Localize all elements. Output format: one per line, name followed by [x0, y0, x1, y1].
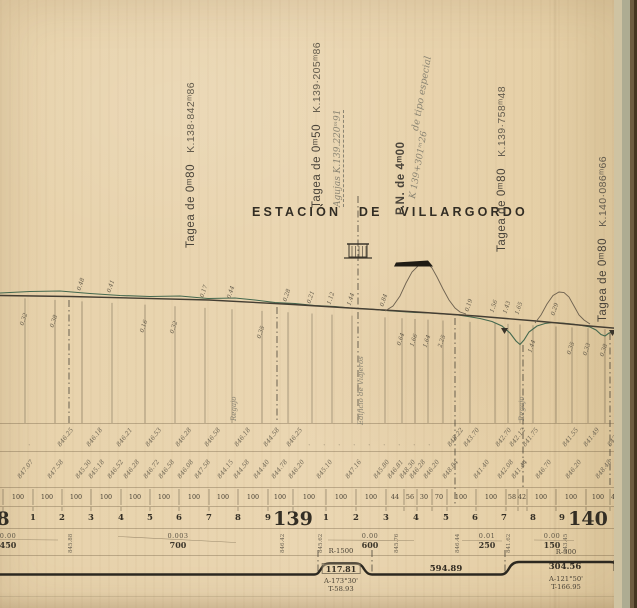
- grade-elevation: 845.10: [316, 459, 334, 480]
- grade-elevation: 846.20: [565, 459, 583, 480]
- distance-value: 56: [406, 494, 414, 500]
- distance-value: 100: [12, 494, 24, 500]
- ordinate-value: 0.35: [257, 326, 267, 340]
- ordinate-value: 1.66: [410, 334, 420, 348]
- stream-label: Regajo: [231, 397, 238, 421]
- terrain-elevation: 846.58: [204, 427, 222, 448]
- distance-value: 100: [303, 494, 315, 500]
- ordinate-value: 1.44: [347, 292, 357, 306]
- grade-elevation: 844.58: [233, 459, 251, 480]
- gradient-elevation-mark: 846.42: [281, 534, 287, 553]
- tagea-name: Tagea de 0ᵐ80: [598, 238, 610, 322]
- tagea-label: Tagea de 0ᵐ80K.138·842ᵐ86: [186, 82, 198, 248]
- ordinate-value: 0.38: [600, 344, 610, 358]
- grade-elevation: 846.20: [288, 459, 306, 480]
- km-mark: 2: [59, 514, 65, 523]
- ordinate-value: 0.38: [50, 315, 60, 329]
- terrain-elevation: 846.28: [175, 427, 193, 448]
- distance-value: 100: [41, 494, 53, 500]
- grade-elevation: 844.78: [271, 459, 289, 480]
- terrain-elevation: ·: [427, 443, 433, 448]
- tagea-km: K.138·842ᵐ86: [186, 82, 197, 153]
- ordinate-value: 0.44: [227, 286, 237, 300]
- distance-value: 100: [485, 494, 497, 500]
- km-mark: 8: [235, 514, 241, 523]
- pn-km-handwritten: K 139+301ᵐ26: [409, 131, 430, 200]
- distance-value: 70: [435, 494, 443, 500]
- grade-elevation: 841.40: [473, 459, 491, 480]
- km-mark: 140: [568, 510, 608, 529]
- grade-elevation: 848.84: [442, 459, 460, 480]
- edificio-handwritten: Edificio de Viajeros: [358, 356, 365, 425]
- page-edge-light: [614, 0, 622, 608]
- distance-value: 100: [535, 494, 547, 500]
- distance-value: 58: [508, 494, 516, 500]
- grade-elevation: 846.28: [123, 459, 141, 480]
- distance-value: 100: [365, 494, 377, 500]
- grade-elevation: 847.07: [17, 459, 35, 480]
- terrain-elevation: 846.25: [57, 427, 75, 448]
- station-title: ESTACIÓN DE VILLARGORDO: [252, 206, 528, 219]
- tagea-km: K.139·205ᵐ86: [312, 42, 323, 113]
- terrain-elevation: 846.18: [86, 427, 104, 448]
- distance-value: 42: [518, 494, 526, 500]
- terrain-elevation: ·: [412, 443, 418, 448]
- ordinate-value: 0.17: [200, 285, 210, 299]
- pn-note-handwritten: de tipo especial: [411, 55, 433, 131]
- ordinate-value: 0.33: [583, 343, 593, 357]
- ordinate-value: 0.21: [307, 290, 317, 304]
- terrain-elevation: ·: [397, 443, 403, 448]
- grade-elevation: 847.58: [194, 459, 212, 480]
- km-mark: 7: [206, 514, 212, 523]
- curve1-length: 117.81: [322, 563, 361, 574]
- distance-value: 44: [391, 494, 399, 500]
- profile-sheet: ESTACIÓN DE VILLARGORDOTagea de 0ᵐ80K.13…: [0, 0, 637, 608]
- km-mark: 139: [273, 510, 313, 529]
- gradient-elevation-mark: 841.62: [507, 534, 513, 553]
- terrain-elevation: ·: [337, 443, 343, 448]
- ordinate-value: 1.56: [490, 300, 500, 314]
- terrain-elevation: 844.58: [263, 427, 281, 448]
- terrain-elevation: 848.22: [447, 427, 465, 448]
- curve1-radius: R-1500: [329, 548, 354, 555]
- distance-value: 100: [592, 494, 604, 500]
- distance-value: 100: [335, 494, 347, 500]
- ordinate-value: 0.48: [77, 278, 87, 292]
- km-mark: 1: [323, 514, 329, 523]
- terrain-elevation: 846.18: [234, 427, 252, 448]
- grade-elevation: 846.08: [177, 459, 195, 480]
- km-mark: 5: [443, 514, 449, 523]
- grade-elevation: 846.52: [107, 459, 125, 480]
- gradient-elevation-mark: 845.88: [69, 534, 75, 553]
- paper-crease: [553, 0, 557, 608]
- km-mark: 8: [530, 514, 536, 523]
- ordinate-value: 0.16: [140, 319, 150, 333]
- gradient-elevation-mark: 845.62: [319, 534, 325, 553]
- gradient-slope: 0.00: [0, 533, 16, 540]
- grade-elevation: 844.40: [253, 459, 271, 480]
- km-mark: 8: [0, 510, 10, 529]
- ordinate-value: 1.64: [423, 334, 433, 348]
- ordinate-value: 0.19: [465, 299, 475, 313]
- km-mark: 7: [501, 514, 507, 523]
- terrain-elevation: ·: [382, 443, 388, 448]
- terrain-elevation: 841.55: [562, 427, 580, 448]
- gradient-slope: 0.01: [479, 533, 495, 540]
- tagea-label: Tagea de 0ᵐ80K.139·758ᵐ48: [497, 86, 509, 252]
- km-mark: 9: [559, 514, 565, 523]
- km-mark: 4: [413, 514, 419, 523]
- gradient-length: 250: [479, 541, 496, 549]
- distance-value: 100: [129, 494, 141, 500]
- distance-value: 100: [455, 494, 467, 500]
- terrain-elevation: 846.21: [116, 427, 134, 448]
- bottom-shadow: [0, 592, 637, 608]
- grade-elevation: 847.58: [47, 459, 65, 480]
- gradient-elevation-mark: 846.44: [456, 534, 462, 553]
- km-mark: 2: [353, 514, 359, 523]
- ordinate-value: 0.64: [397, 333, 407, 347]
- km-mark: 3: [88, 514, 94, 523]
- grade-elevation: 844.15: [217, 459, 235, 480]
- agujas-handwritten: Agujas K.139.220ᵐ91: [334, 110, 344, 207]
- gradient-length: 600: [362, 541, 379, 549]
- ordinate-value: 1.65: [515, 301, 525, 315]
- distance-value: 100: [100, 494, 112, 500]
- km-mark: 4: [118, 514, 124, 523]
- ordinate-value: 2.25: [438, 335, 448, 349]
- terrain-elevation: 841.49: [583, 427, 601, 448]
- terrain-elevation: 846.53: [145, 427, 163, 448]
- curve2-radius: R-300: [556, 549, 576, 556]
- grade-elevation: 846.70: [535, 459, 553, 480]
- terrain-elevation: ·: [307, 443, 313, 448]
- tagea-name: Tagea de 0ᵐ80: [497, 168, 509, 252]
- distance-value: 100: [274, 494, 286, 500]
- grade-elevation: 847.16: [345, 459, 363, 480]
- km-mark: 9: [265, 514, 271, 523]
- km-mark: 6: [176, 514, 182, 523]
- terrain-elevation: 843.70: [463, 427, 481, 448]
- distance-value: 100: [565, 494, 577, 500]
- distance-value: 30: [420, 494, 428, 500]
- terrain-elevation: ·: [27, 443, 33, 448]
- gradient-slope: 0.00: [362, 533, 378, 540]
- terrain-elevation: ·: [322, 443, 328, 448]
- gradient-length: 450: [0, 541, 16, 549]
- ordinate-value: 0.41: [107, 280, 117, 294]
- km-mark: 3: [383, 514, 389, 523]
- stream-label: Regajo: [519, 397, 526, 421]
- terrain-elevation: ·: [352, 443, 358, 448]
- tagea-name: Tagea de 0ᵐ50: [312, 124, 324, 208]
- km-mark: 1: [30, 514, 36, 523]
- straight-length: 594.89: [430, 565, 463, 574]
- km-mark: 6: [472, 514, 478, 523]
- tagea-label: Tagea de 0ᵐ50K.139·205ᵐ86: [312, 42, 324, 208]
- ordinate-value: 0.28: [283, 289, 293, 303]
- page-edge-green: [622, 0, 630, 608]
- gradient-elevation-mark: 845.76: [395, 534, 401, 553]
- tagea-label: Tagea de 0ᵐ80K.140·086ᵐ66: [598, 156, 610, 322]
- distance-value: 100: [247, 494, 259, 500]
- tagea-name: Tagea de 0ᵐ80: [186, 164, 198, 248]
- ordinate-value: 0.35: [567, 342, 577, 356]
- distance-value: 100: [217, 494, 229, 500]
- curve1-angle: A-173°30': [324, 578, 358, 585]
- km-mark: 5: [147, 514, 153, 523]
- ordinate-value: 0.32: [170, 321, 180, 335]
- ordinate-value: 0.32: [20, 313, 30, 327]
- ordinate-value: 1.12: [327, 291, 337, 305]
- tagea-km: K.140·086ᵐ66: [598, 156, 609, 227]
- gradient-slope: 0.00: [544, 533, 560, 540]
- distance-value: 100: [188, 494, 200, 500]
- distance-value: 100: [70, 494, 82, 500]
- ordinate-value: 1.43: [503, 301, 513, 315]
- pn-label: P.N. de 4ᵐ00: [396, 141, 408, 215]
- ordinate-value: 1.44: [528, 340, 538, 354]
- distance-value: 100: [158, 494, 170, 500]
- tagea-km: K.139·758ᵐ48: [497, 86, 508, 157]
- terrain-elevation: 846.25: [286, 427, 304, 448]
- ordinate-value: 0.84: [380, 294, 390, 308]
- gradient-length: 700: [170, 541, 187, 549]
- terrain-elevation: ·: [367, 443, 373, 448]
- grade-elevation: 848.48: [595, 459, 613, 480]
- gradient-slope: 0.003: [167, 533, 188, 540]
